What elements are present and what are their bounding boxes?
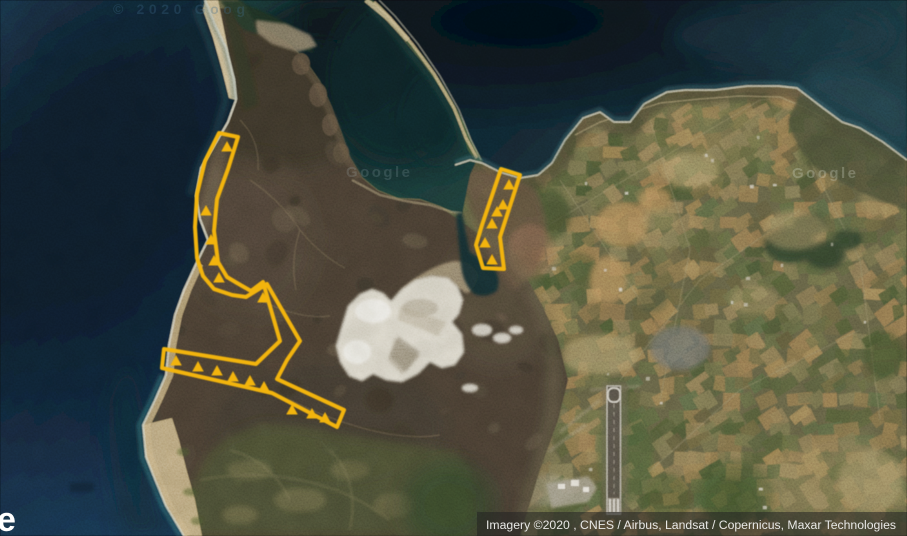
svg-text:e: e: [0, 501, 16, 536]
svg-text:Imagery ©2020 , CNES / Airbus,: Imagery ©2020 , CNES / Airbus, Landsat /…: [486, 520, 896, 532]
